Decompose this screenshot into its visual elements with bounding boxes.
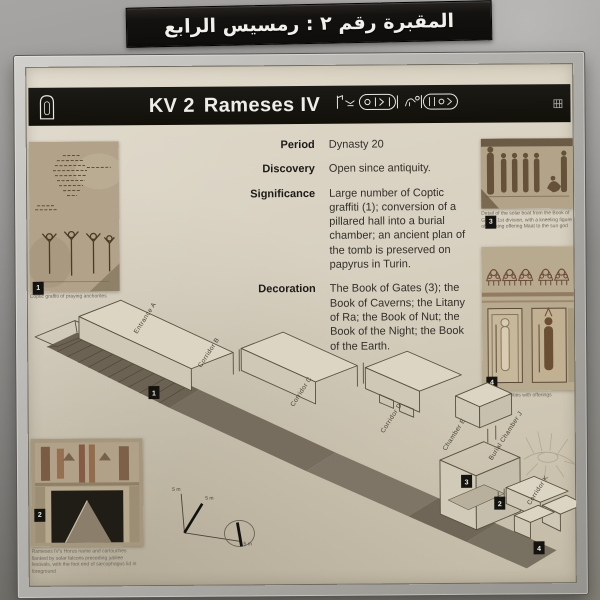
diagram-marker-3: 3 xyxy=(461,475,472,488)
sign-frame: KV 2Rameses IV xyxy=(14,52,588,598)
diagram-label-chamber-e: Chamber E xyxy=(442,417,468,452)
north-indicator xyxy=(224,520,254,546)
svg-text:4: 4 xyxy=(537,546,541,553)
svg-text:3: 3 xyxy=(465,479,469,486)
diagram-marker-1: 1 xyxy=(148,386,159,399)
svg-text:1: 1 xyxy=(152,391,156,398)
photo-of-tomb-sign: { "banner": { "title_arabic": "المقبرة ر… xyxy=(0,0,600,600)
scale-label-vertical: 5 m xyxy=(172,487,180,493)
banner-arabic-title: المقبرة رقم ٢ : رمسيس الرابع xyxy=(164,10,455,38)
scale-label-diagonal: 5 m xyxy=(205,496,213,502)
diagram-marker-2: 2 xyxy=(494,497,505,510)
tomb-isometric-diagram: Entrance A Corridor B Corridor C Corrido… xyxy=(25,63,577,587)
diagram-marker-4: 4 xyxy=(534,541,545,554)
svg-text:2: 2 xyxy=(498,501,502,508)
diagram-label-corridor-d: Corridor D xyxy=(380,402,404,434)
sign-panel: KV 2Rameses IV xyxy=(25,63,577,587)
wall-banner: المقبرة رقم ٢ : رمسيس الرابع xyxy=(126,0,493,48)
